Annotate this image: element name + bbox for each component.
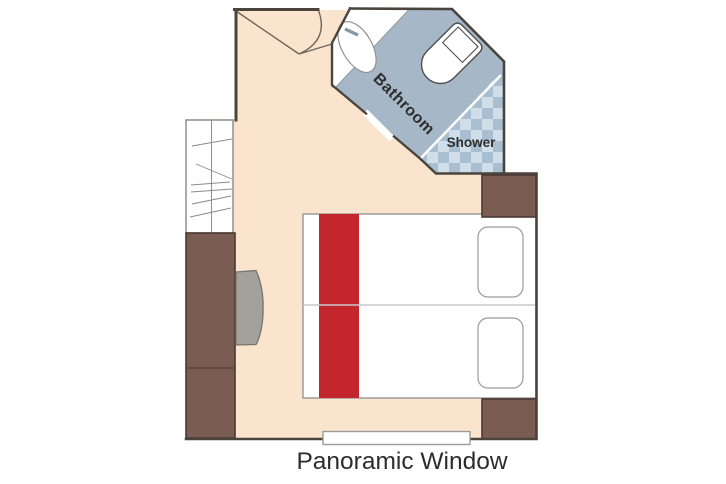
nightstand-bottom [482,399,536,439]
panoramic-window [323,432,470,445]
left-cabinet-body [186,233,235,438]
twin-beds [303,214,536,398]
bed-runner-red [319,214,359,398]
window-label: Panoramic Window [296,448,507,475]
floorplan-svg: Bathroom Shower Panoramic Window [0,0,726,484]
nightstand-top [482,175,536,217]
pillow-bottom [478,318,523,388]
left-cabinet [186,233,235,438]
pillow-top [478,227,523,297]
shower-label: Shower [447,135,497,150]
armchair [236,271,263,346]
wardrobe [186,120,233,233]
cabin-floorplan: Bathroom Shower Panoramic Window [0,0,726,484]
